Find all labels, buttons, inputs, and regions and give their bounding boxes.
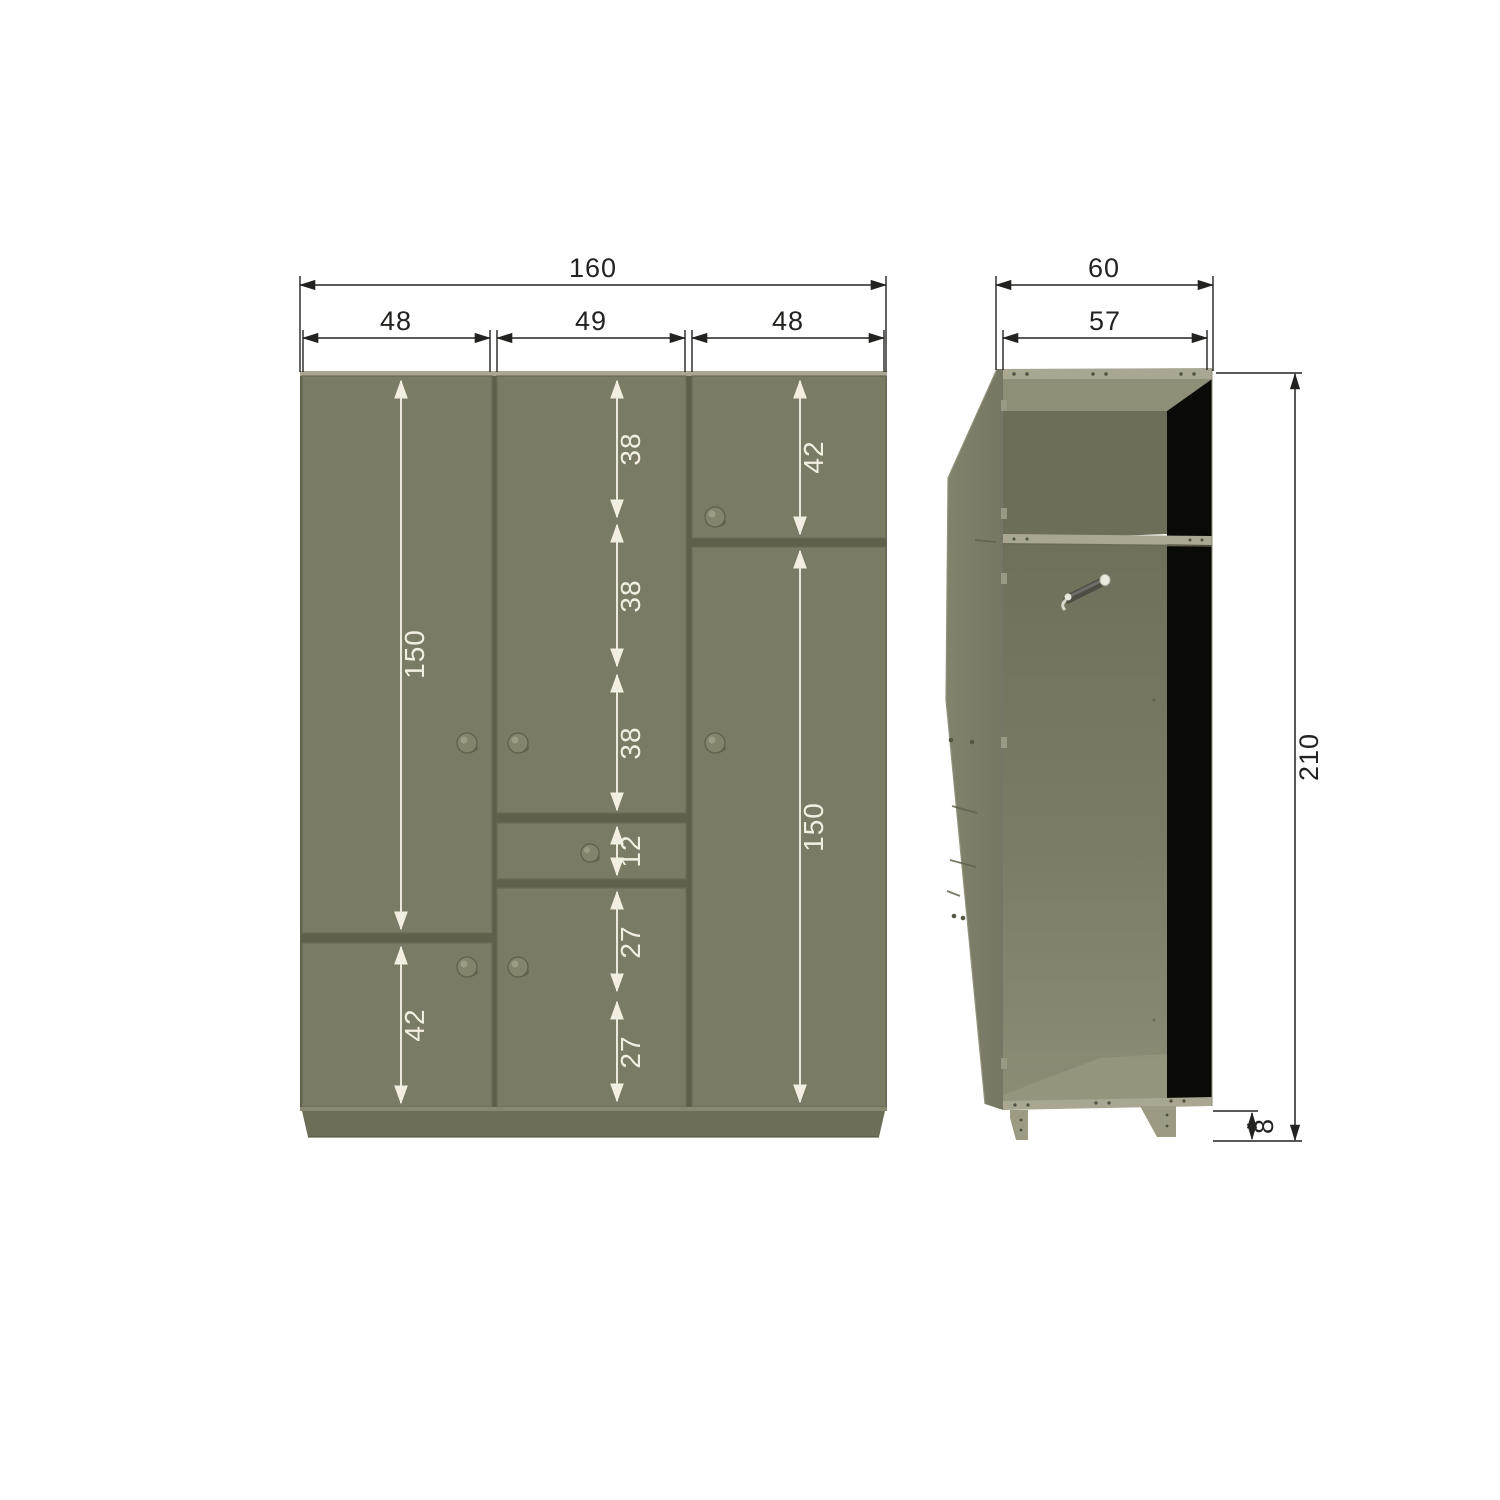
front-door-left-tall (302, 376, 492, 933)
side-leg-right (1140, 1106, 1176, 1137)
front-door-middle-lower (497, 888, 686, 1107)
plinth (302, 1111, 885, 1137)
side-upper-cavity (1003, 411, 1167, 540)
plinth-lip (300, 1107, 887, 1111)
dim-label-drawer-height: 12 (615, 834, 646, 867)
drawer-knob (581, 844, 600, 863)
dim-label-middle-segment-1: 38 (615, 432, 646, 465)
door-knob (705, 507, 726, 527)
side-lower-cavity (1003, 536, 1167, 1107)
dim-label-overall-height: 210 (1294, 733, 1324, 781)
side-back-shadow (1167, 379, 1212, 1101)
dim-label-middle-segment-3: 38 (615, 726, 646, 759)
dim-label-right-upper-door-height: 42 (798, 440, 829, 473)
dim-label-middle-segment-2: 38 (615, 579, 646, 612)
front-top-edge (300, 371, 887, 376)
dim-label-middle-lower-segment-1: 27 (615, 925, 646, 958)
dim-label-overall-depth: 60 (1088, 253, 1120, 283)
dim-label-base-height: 8 (1249, 1118, 1279, 1134)
front-door-right-tall (692, 547, 886, 1107)
door-knob (457, 733, 478, 753)
dim-label-overall-width: 160 (569, 253, 617, 283)
wardrobe-dimension-diagram: 160 48 49 48 60 57 210 8 150 42 38 38 38… (0, 0, 1500, 1500)
dim-label-right-door-height: 150 (798, 802, 829, 852)
dim-label-interior-depth: 57 (1089, 306, 1121, 336)
side-leg-left (1010, 1110, 1028, 1140)
door-knob (457, 957, 478, 977)
door-knob (508, 957, 529, 977)
dim-label-left-lower-door-height: 42 (399, 1008, 430, 1041)
door-knob (705, 733, 726, 753)
dim-label-middle-lower-segment-2: 27 (615, 1035, 646, 1068)
dim-label-left-door-height: 150 (399, 629, 430, 679)
front-view (300, 371, 887, 1137)
dim-label-left-width: 48 (380, 306, 412, 336)
diagram-canvas: 160 48 49 48 60 57 210 8 150 42 38 38 38… (0, 0, 1500, 1500)
dim-label-middle-width: 49 (575, 306, 607, 336)
dim-label-right-width: 48 (772, 306, 804, 336)
side-view (946, 368, 1212, 1140)
door-knob (508, 733, 529, 753)
